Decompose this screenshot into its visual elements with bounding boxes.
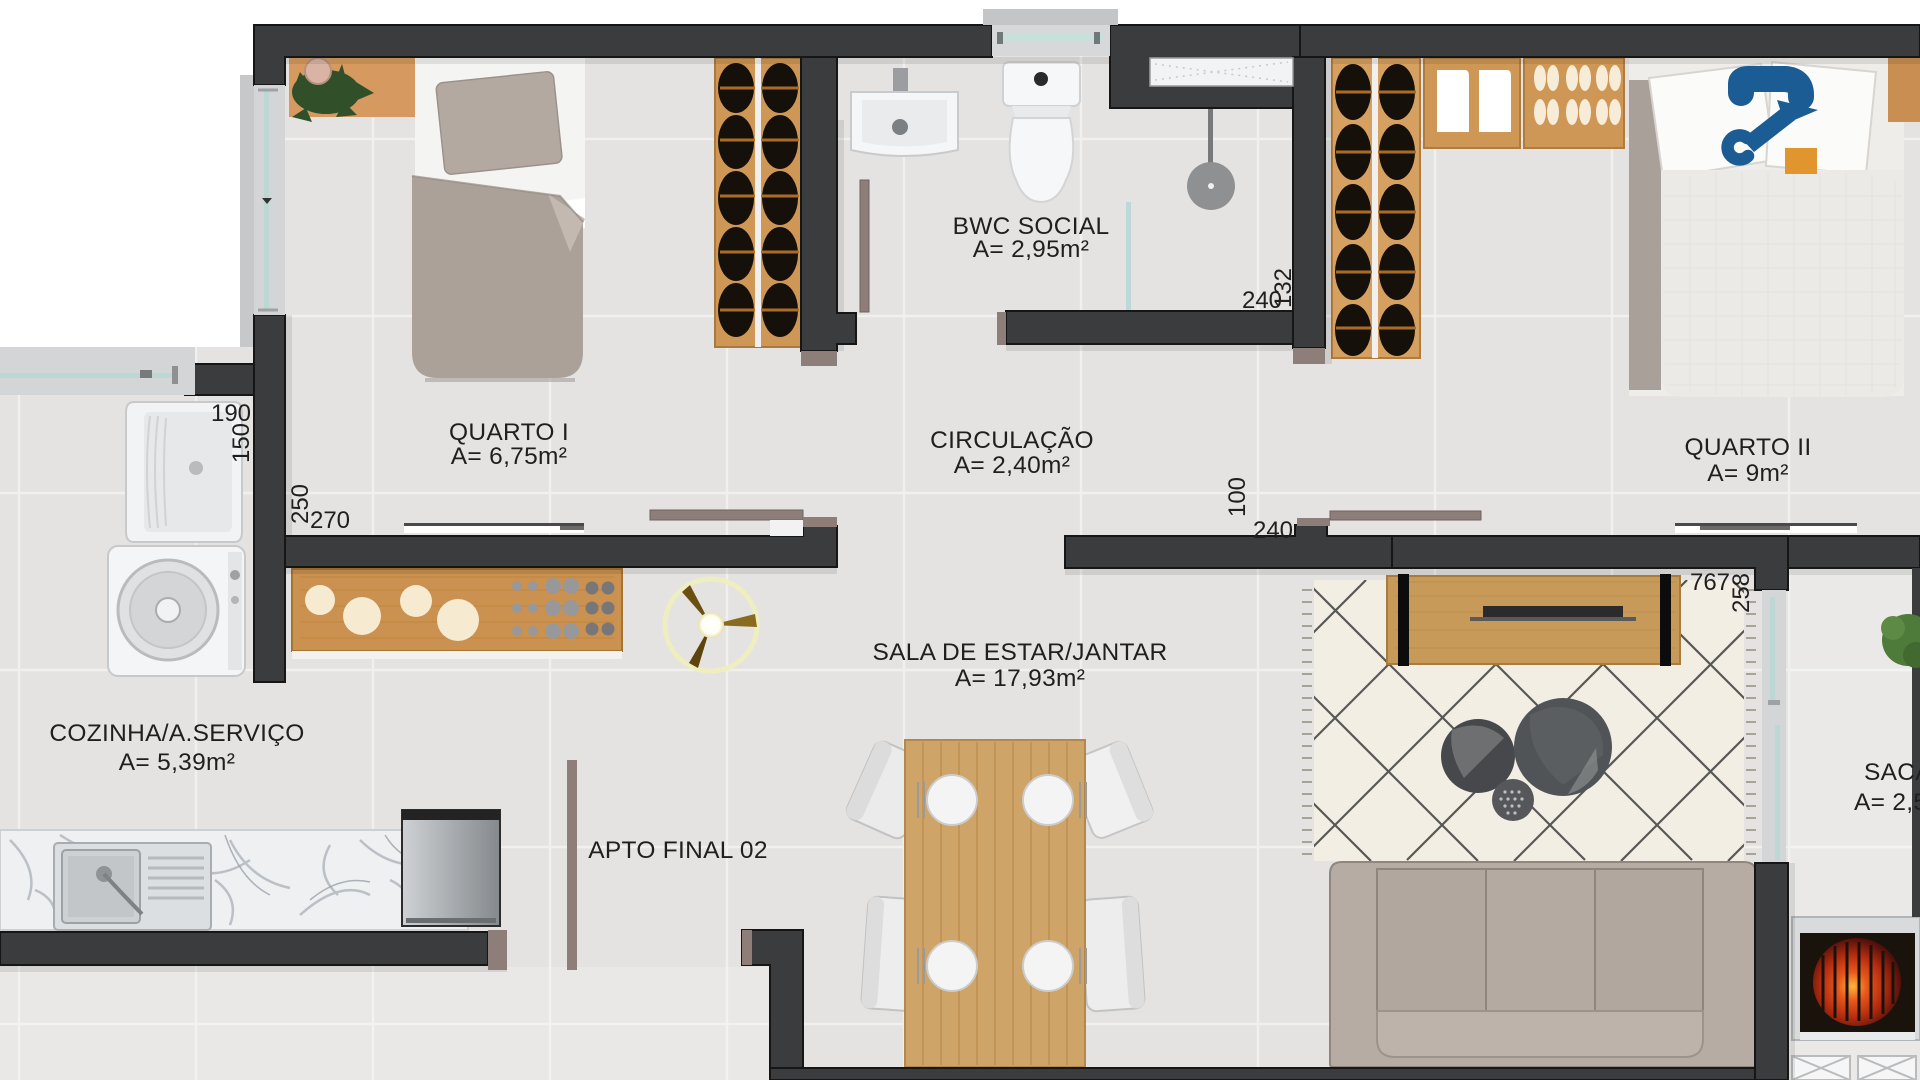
svg-text:240: 240 — [1253, 517, 1293, 544]
svg-text:A= 2,5m²: A= 2,5m² — [1854, 789, 1920, 816]
svg-text:A= 9m²: A= 9m² — [1707, 460, 1788, 487]
svg-text:CIRCULAÇÃO: CIRCULAÇÃO — [930, 427, 1094, 454]
svg-text:QUARTO I: QUARTO I — [449, 419, 569, 446]
svg-text:SACADA: SACADA — [1864, 759, 1920, 786]
svg-text:A= 2,40m²: A= 2,40m² — [954, 452, 1070, 479]
svg-text:COZINHA/A.SERVIÇO: COZINHA/A.SERVIÇO — [49, 720, 304, 747]
svg-text:SALA DE ESTAR/JANTAR: SALA DE ESTAR/JANTAR — [872, 639, 1167, 666]
svg-text:QUARTO II: QUARTO II — [1684, 434, 1811, 461]
svg-text:767: 767 — [1690, 569, 1730, 596]
svg-text:A= 5,39m²: A= 5,39m² — [119, 749, 235, 776]
svg-text:100: 100 — [1224, 477, 1251, 517]
svg-text:A= 6,75m²: A= 6,75m² — [451, 443, 567, 470]
svg-text:190: 190 — [211, 400, 251, 427]
svg-text:A= 17,93m²: A= 17,93m² — [955, 665, 1085, 692]
svg-text:132: 132 — [1270, 268, 1297, 308]
svg-text:APTO FINAL 02: APTO FINAL 02 — [588, 837, 768, 864]
svg-text:270: 270 — [310, 507, 350, 534]
svg-text:A= 2,95m²: A= 2,95m² — [973, 236, 1089, 263]
svg-text:150: 150 — [228, 423, 255, 463]
svg-text:258: 258 — [1728, 573, 1755, 613]
